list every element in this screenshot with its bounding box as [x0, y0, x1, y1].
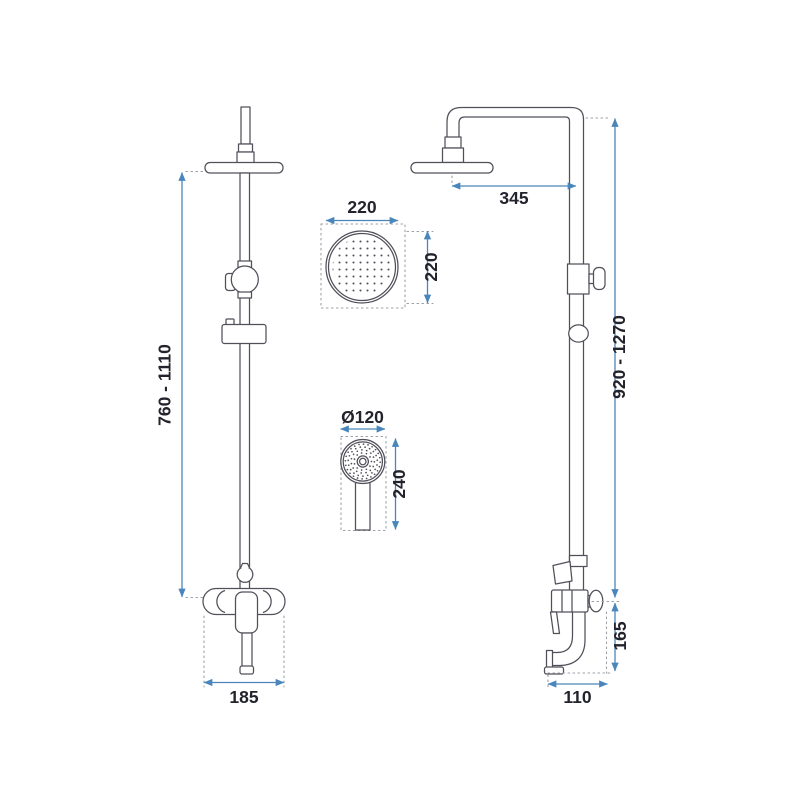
- front-spout-end: [240, 666, 254, 674]
- side-mixer-lever: [551, 612, 560, 634]
- side-mixer-collar: [570, 556, 588, 567]
- dim-label-spout-drop: 165: [610, 621, 630, 650]
- dim-label-front-height: 760 - 1110: [155, 344, 175, 426]
- front-slider-collar-bottom: [238, 292, 252, 298]
- front-head-nut: [239, 144, 253, 152]
- side-mixer-body: [552, 590, 589, 612]
- dimension-hand-shower-diameter: Ø120: [341, 407, 386, 429]
- front-hose-clip-notch: [241, 564, 250, 569]
- front-mixer-body: [236, 592, 258, 633]
- dim-label-hand-length: 240: [389, 469, 409, 498]
- side-mixer-knob: [589, 590, 603, 612]
- dim-label-spout-reach: 110: [563, 687, 591, 707]
- side-rain-head-disc: [411, 163, 493, 174]
- front-slider-knob: [231, 266, 258, 293]
- side-head-connector: [443, 148, 464, 163]
- side-spout-end-face: [547, 651, 553, 670]
- front-head-collar: [237, 152, 254, 163]
- front-rain-head-disc: [205, 163, 283, 174]
- front-spout: [242, 633, 252, 668]
- dim-label-head-height: 220: [421, 252, 441, 281]
- dim-label-front-mixer-width: 185: [229, 687, 258, 707]
- front-soap-dish: [222, 325, 266, 344]
- hand-shower-view: [341, 437, 386, 531]
- dimension-head-height: 220: [407, 231, 441, 304]
- side-pipe-outer: [447, 108, 584, 592]
- dimension-hand-shower-length: 240: [389, 439, 409, 530]
- front-hose-clip: [237, 567, 253, 583]
- front-view: [203, 107, 285, 674]
- dim-label-head-width: 220: [347, 197, 376, 217]
- front-riser-pipe: [240, 173, 250, 592]
- dim-label-arm-reach: 345: [499, 188, 528, 208]
- side-bracket-block: [568, 264, 590, 294]
- dimension-spout-drop: 165: [610, 603, 630, 671]
- dimension-side-height: 920 - 1270: [586, 118, 629, 602]
- dimension-arm-reach: 345: [452, 176, 576, 208]
- dimension-front-height: 760 - 1110: [155, 172, 205, 598]
- shower-set-technical-drawing: 760 - 1110 185 220 220 Ø120 240 345 920 …: [0, 0, 800, 800]
- side-slider-ring: [569, 325, 589, 342]
- dimension-head-width: 220: [326, 197, 398, 221]
- side-bracket-knob: [594, 268, 606, 290]
- overhead-shower-top-view: [321, 224, 405, 308]
- front-top-pipe: [241, 107, 250, 144]
- dim-label-side-height: 920 - 1270: [609, 315, 629, 399]
- hand-shower-handle: [356, 482, 371, 530]
- dim-label-hand-diameter: Ø120: [341, 407, 384, 427]
- technical-drawing-canvas: 760 - 1110 185 220 220 Ø120 240 345 920 …: [0, 0, 800, 800]
- side-head-nut: [445, 137, 461, 148]
- head-spray-face: [333, 238, 392, 297]
- side-diverter-handle: [553, 562, 572, 585]
